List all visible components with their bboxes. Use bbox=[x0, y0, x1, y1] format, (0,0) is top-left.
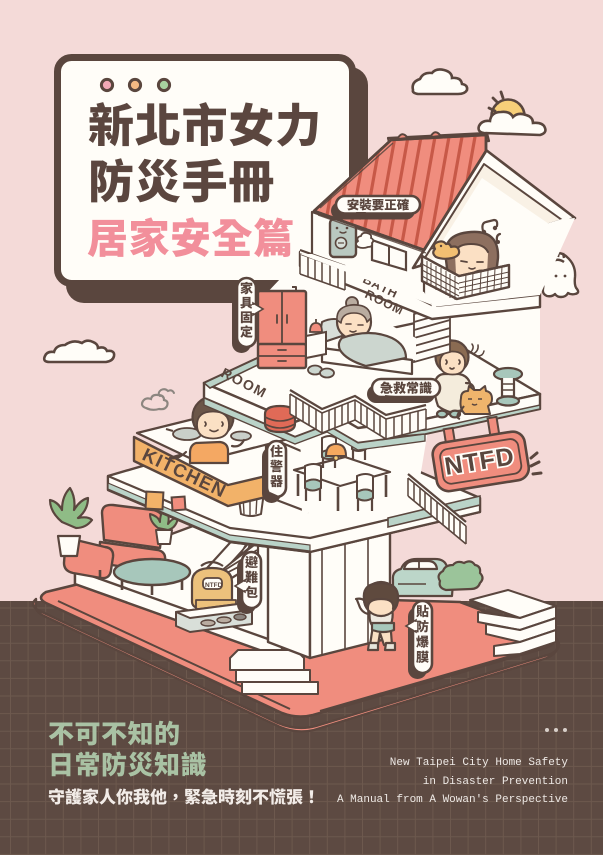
svg-text:New Taipei City Home Safety: New Taipei City Home Safety bbox=[390, 757, 569, 769]
svg-text:A Manual from A Wowan's Perspe: A Manual from A Wowan's Perspective bbox=[337, 794, 568, 806]
svg-text:in Disaster Prevention: in Disaster Prevention bbox=[423, 776, 568, 788]
